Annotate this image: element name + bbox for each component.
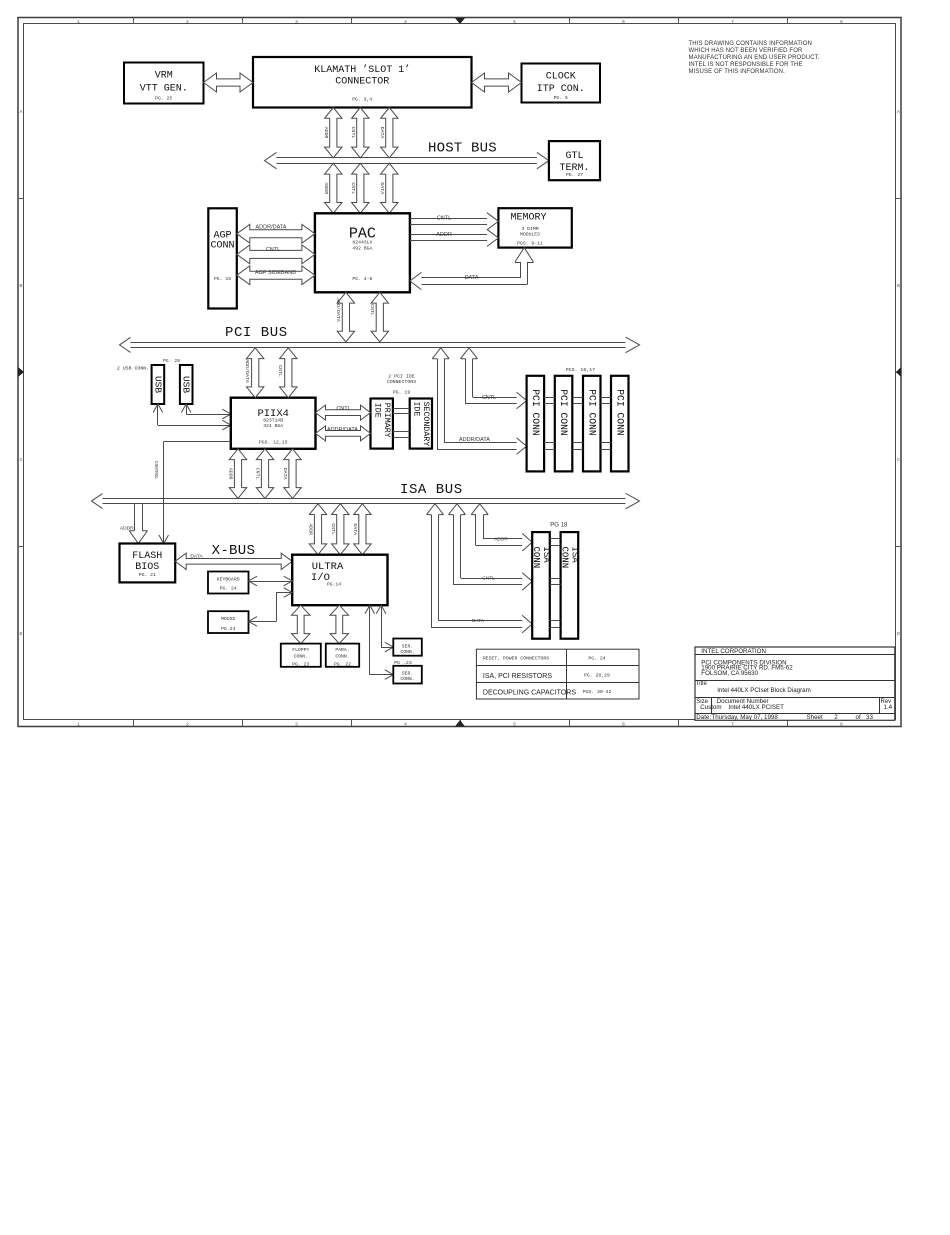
- svg-text:Custom: Custom: [700, 704, 721, 711]
- svg-text:GTL: GTL: [565, 151, 583, 162]
- svg-text:SER.: SER.: [402, 643, 413, 649]
- svg-text:82371AB: 82371AB: [263, 418, 283, 424]
- svg-text:FLOPPY: FLOPPY: [292, 647, 309, 653]
- svg-text:X-BUS: X-BUS: [212, 543, 256, 559]
- svg-text:ADD/DATA: ADD/DATA: [244, 359, 250, 383]
- svg-text:Sheet: Sheet: [807, 714, 823, 721]
- svg-text:DATA: DATA: [472, 618, 485, 624]
- svg-text:WHICH HAS NOT BEEN VERIFIED FO: WHICH HAS NOT BEEN VERIFIED FOR: [689, 48, 803, 54]
- svg-text:MANUFACTURING AN END USER PROD: MANUFACTURING AN END USER PRODUCT.: [689, 55, 820, 61]
- svg-text:PG. 23: PG. 23: [292, 661, 309, 667]
- svg-text:PGS. 16,17: PGS. 16,17: [566, 367, 595, 373]
- svg-text:AGP SIDEBAND: AGP SIDEBAND: [255, 270, 296, 276]
- svg-text:CNTL: CNTL: [482, 576, 495, 582]
- svg-text:Thursday, May 07, 1998: Thursday, May 07, 1998: [712, 714, 779, 721]
- svg-text:CONN: CONN: [560, 547, 570, 569]
- svg-text:PG. 28: PG. 28: [163, 358, 180, 364]
- svg-text:of: of: [856, 714, 861, 721]
- svg-text:1: 1: [77, 721, 80, 727]
- svg-text:PG. 5: PG. 5: [554, 95, 568, 101]
- svg-text:PG. 28,29: PG. 28,29: [584, 673, 610, 679]
- svg-text:33: 33: [866, 714, 873, 721]
- svg-text:PGS. 30-32: PGS. 30-32: [583, 689, 612, 695]
- svg-text:MEMORY: MEMORY: [510, 212, 546, 223]
- svg-text:CONNECTOR: CONNECTOR: [335, 77, 389, 88]
- svg-text:Date:: Date:: [696, 714, 711, 721]
- svg-text:ADDR: ADDR: [323, 182, 329, 194]
- svg-text:PG 18: PG 18: [550, 523, 568, 529]
- svg-text:ADDR/DATA: ADDR/DATA: [327, 427, 358, 433]
- svg-text:C: C: [897, 457, 900, 463]
- svg-text:PG. 21: PG. 21: [139, 572, 156, 578]
- svg-text:DATA: DATA: [465, 275, 479, 281]
- svg-text:8: 8: [840, 19, 843, 25]
- svg-text:6: 6: [622, 19, 625, 25]
- svg-text:THIS DRAWING CONTAINS INFORMAT: THIS DRAWING CONTAINS INFORMATION: [689, 41, 813, 47]
- svg-text:CNTL: CNTL: [369, 304, 375, 316]
- svg-text:2: 2: [834, 714, 838, 721]
- svg-text:CONTROL: CONTROL: [153, 461, 158, 479]
- svg-text:PARA.: PARA.: [335, 647, 349, 653]
- svg-text:PG. 4-8: PG. 4-8: [352, 276, 372, 282]
- svg-text:SECONDARY: SECONDARY: [421, 402, 430, 447]
- svg-text:PG. 27: PG. 27: [566, 172, 583, 178]
- svg-text:8: 8: [840, 721, 843, 727]
- svg-text:CNTL: CNTL: [266, 247, 280, 253]
- svg-text:IDE: IDE: [412, 402, 421, 417]
- svg-text:CLOCK: CLOCK: [546, 72, 576, 83]
- svg-text:3: 3: [295, 721, 298, 727]
- svg-text:RESET, POWER CONNECTORS: RESET, POWER CONNECTORS: [483, 656, 549, 662]
- svg-text:ISA: ISA: [541, 547, 551, 564]
- svg-text:1.4: 1.4: [884, 704, 893, 711]
- svg-text:CONN.: CONN.: [335, 654, 349, 660]
- svg-text:PG. 22: PG. 22: [334, 661, 351, 667]
- svg-text:INTEL IS NOT RESPONSIBLE FOR T: INTEL IS NOT RESPONSIBLE FOR THE: [689, 62, 803, 68]
- svg-text:DATA: DATA: [190, 553, 203, 559]
- svg-text:ADD/DATA: ADD/DATA: [335, 298, 341, 322]
- svg-text:CONNECTORS: CONNECTORS: [387, 379, 416, 385]
- svg-text:492 BGA: 492 BGA: [352, 246, 372, 252]
- svg-text:D: D: [897, 631, 900, 637]
- svg-text:CNTL: CNTL: [330, 523, 336, 535]
- svg-text:DECOUPLING CAPACITORS: DECOUPLING CAPACITORS: [483, 689, 576, 696]
- svg-text:5: 5: [513, 19, 516, 25]
- svg-text:ADDR: ADDR: [120, 525, 134, 531]
- svg-text:82443LX: 82443LX: [352, 240, 372, 246]
- svg-text:FOLSOM, CA 95630: FOLSOM, CA 95630: [701, 670, 758, 677]
- svg-text:1: 1: [77, 19, 80, 25]
- svg-text:PG. 24: PG. 24: [588, 656, 605, 662]
- svg-text:2 USB CONN.: 2 USB CONN.: [117, 365, 149, 371]
- svg-text:ADDR/DATA: ADDR/DATA: [459, 437, 490, 443]
- svg-text:Title: Title: [696, 681, 708, 687]
- svg-text:ADDR: ADDR: [436, 232, 452, 238]
- svg-text:CNTL: CNTL: [336, 406, 350, 412]
- svg-text:DATA: DATA: [379, 127, 385, 139]
- svg-text:7: 7: [731, 19, 734, 25]
- svg-text:B: B: [20, 283, 23, 289]
- svg-text:PG. 19: PG. 19: [393, 389, 411, 395]
- svg-text:PCI CONN: PCI CONN: [558, 389, 569, 436]
- svg-text:ADDR: ADDR: [228, 468, 234, 480]
- svg-text:5: 5: [513, 721, 516, 727]
- svg-text:KEYBOARD: KEYBOARD: [217, 576, 240, 582]
- svg-text:3 DIMM: 3 DIMM: [521, 226, 538, 232]
- svg-text:BIOS: BIOS: [135, 562, 159, 573]
- svg-text:PCI BUS: PCI BUS: [225, 325, 288, 341]
- svg-text:MODULES: MODULES: [520, 232, 540, 238]
- svg-text:SER.: SER.: [402, 671, 413, 677]
- svg-text:DATA: DATA: [282, 468, 288, 480]
- svg-text:CNTL: CNTL: [277, 365, 283, 377]
- svg-text:ISA: ISA: [569, 547, 579, 564]
- svg-text:PG. 25: PG. 25: [155, 96, 172, 102]
- svg-text:CONN.: CONN.: [400, 649, 414, 655]
- svg-text:DATA: DATA: [352, 523, 358, 535]
- svg-text:VRM: VRM: [155, 71, 173, 82]
- svg-text:A: A: [20, 109, 23, 115]
- svg-text:B: B: [897, 283, 900, 289]
- svg-text:324 BGA: 324 BGA: [263, 423, 283, 429]
- svg-text:VTT GEN.: VTT GEN.: [140, 84, 188, 95]
- svg-text:PGS. 12,13: PGS. 12,13: [259, 440, 288, 446]
- svg-text:FLASH: FLASH: [132, 551, 162, 562]
- svg-text:PG.24: PG.24: [221, 626, 235, 632]
- svg-text:PG. 24: PG. 24: [220, 585, 237, 591]
- svg-text:CONN: CONN: [531, 547, 541, 569]
- svg-text:KLAMATH ’SLOT 1’: KLAMATH ’SLOT 1’: [314, 64, 410, 76]
- svg-text:CNTL: CNTL: [482, 395, 496, 401]
- svg-text:A: A: [897, 109, 900, 115]
- svg-text:ISA BUS: ISA BUS: [400, 482, 463, 498]
- svg-text:CNTL: CNTL: [437, 215, 451, 221]
- svg-text:PG. 15: PG. 15: [214, 276, 231, 282]
- svg-text:DATA: DATA: [379, 182, 385, 194]
- svg-text:PCI CONN: PCI CONN: [614, 389, 625, 436]
- svg-text:ADDR: ADDR: [494, 536, 508, 542]
- svg-text:2: 2: [186, 19, 189, 25]
- svg-text:C: C: [20, 457, 23, 463]
- svg-text:PCI CONN: PCI CONN: [530, 389, 541, 436]
- svg-text:ADDR: ADDR: [323, 127, 329, 139]
- svg-text:PRIMARY: PRIMARY: [382, 403, 391, 438]
- svg-text:2 PCI IDE: 2 PCI IDE: [388, 374, 414, 380]
- svg-text:CNTL: CNTL: [350, 127, 356, 139]
- svg-text:3: 3: [295, 19, 298, 25]
- svg-text:MISUSE OF THIS INFORMATION.: MISUSE OF THIS INFORMATION.: [689, 69, 786, 75]
- svg-text:PG. 3,4: PG. 3,4: [352, 97, 372, 103]
- svg-text:PGS. 9-11: PGS. 9-11: [517, 241, 543, 247]
- svg-text:Intel 440LX PCISET: Intel 440LX PCISET: [729, 704, 785, 711]
- svg-text:6: 6: [622, 721, 625, 727]
- svg-text:2: 2: [186, 721, 189, 727]
- svg-text:IDE: IDE: [372, 403, 381, 418]
- svg-text:USB: USB: [152, 376, 163, 393]
- svg-text:7: 7: [731, 721, 734, 727]
- svg-text:USB: USB: [181, 376, 192, 393]
- svg-text:HOST BUS: HOST BUS: [428, 140, 497, 156]
- svg-text:ADDR: ADDR: [308, 523, 314, 535]
- svg-text:ISA, PCI RESISTORS: ISA, PCI RESISTORS: [483, 673, 552, 680]
- svg-text:Intel 440LX PCIset Block Diagr: Intel 440LX PCIset Block Diagram: [717, 687, 811, 694]
- svg-text:PCI CONN: PCI CONN: [586, 389, 597, 436]
- svg-text:4: 4: [404, 721, 407, 727]
- svg-text:INTEL CORPORATION: INTEL CORPORATION: [701, 648, 766, 655]
- svg-text:ADDR/DATA: ADDR/DATA: [256, 225, 287, 231]
- svg-text:CNTL: CNTL: [350, 182, 356, 194]
- svg-text:CONN: CONN: [210, 241, 234, 252]
- svg-text:4: 4: [404, 19, 407, 25]
- svg-text:D: D: [20, 631, 23, 637]
- svg-text:CONN.: CONN.: [400, 676, 414, 682]
- svg-text:ITP CON.: ITP CON.: [537, 84, 585, 95]
- svg-text:CONN.: CONN.: [294, 654, 308, 660]
- svg-text:MOUSE: MOUSE: [221, 616, 235, 622]
- svg-text:PG.14: PG.14: [327, 581, 341, 587]
- svg-text:CNTL: CNTL: [255, 468, 261, 480]
